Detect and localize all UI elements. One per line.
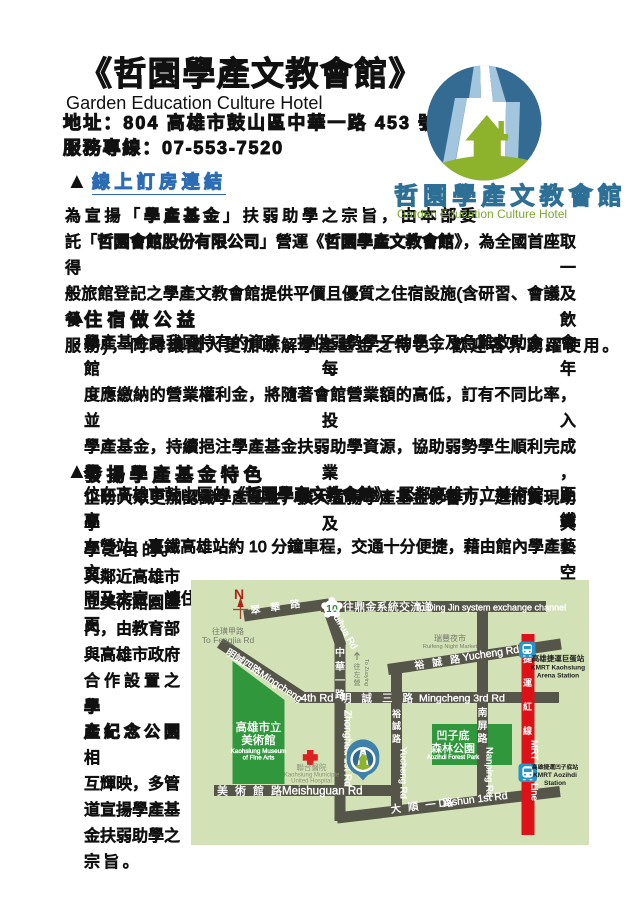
svg-text:美術館路: 美術館路	[217, 784, 289, 798]
svg-text:Ruifeng Night Market: Ruifeng Night Market	[423, 644, 478, 650]
svg-text:左: 左	[354, 670, 361, 679]
svg-text:KMRT Aozihdi: KMRT Aozihdi	[533, 772, 577, 779]
svg-text:Meishuguan Rd: Meishuguan Rd	[282, 786, 363, 798]
svg-text:路: 路	[392, 733, 401, 744]
svg-text:華: 華	[335, 661, 345, 673]
svg-text:Aozihdi Forest Park: Aozihdi Forest Park	[427, 755, 480, 761]
svg-text:To Fengjia Rd: To Fengjia Rd	[202, 635, 255, 645]
svg-text:明誠三路: 明誠三路	[341, 692, 423, 705]
svg-text:Station: Station	[544, 780, 566, 787]
svg-text:高雄捷運巨蛋站: 高雄捷運巨蛋站	[532, 653, 585, 663]
svg-text:Yucheng Rd: Yucheng Rd	[398, 747, 409, 799]
svg-text:營: 營	[354, 678, 361, 687]
svg-text:裕: 裕	[392, 708, 401, 719]
svg-text:屏: 屏	[478, 720, 488, 732]
svg-text:凹子底: 凹子底	[437, 728, 470, 742]
svg-text:高雄捷運凹子底站: 高雄捷運凹子底站	[532, 763, 579, 771]
svg-text:中: 中	[335, 646, 345, 659]
svg-text:路: 路	[478, 732, 488, 745]
svg-text:線: 線	[523, 725, 532, 736]
svg-text:南: 南	[478, 706, 488, 719]
svg-text:紅: 紅	[523, 702, 532, 712]
svg-text:To Zuoying: To Zuoying	[363, 659, 369, 686]
svg-text:瑞豐夜市: 瑞豐夜市	[434, 633, 466, 643]
svg-text:往: 往	[354, 662, 361, 671]
svg-text:of Fine Arts: of Fine Arts	[243, 755, 275, 762]
svg-text:United Hospital: United Hospital	[291, 779, 332, 785]
svg-text:N: N	[234, 586, 244, 602]
svg-text:Mingcheng 3rd Rd: Mingcheng 3rd Rd	[419, 693, 505, 705]
svg-text:To Ding Jin system exchange ch: To Ding Jin system exchange channel	[415, 603, 566, 613]
svg-text:運: 運	[523, 678, 532, 688]
svg-text:高雄市立: 高雄市立	[236, 720, 282, 734]
svg-text:Nanping Rd: Nanping Rd	[484, 747, 495, 797]
svg-text:4th Rd: 4th Rd	[301, 693, 333, 705]
svg-text:Arena Station: Arena Station	[537, 673, 579, 680]
svg-text:美術館: 美術館	[241, 733, 276, 747]
svg-text:KMRT Kaohsiung: KMRT Kaohsiung	[531, 665, 585, 672]
svg-text:聯合醫院: 聯合醫院	[297, 762, 327, 772]
svg-text:森林公園: 森林公園	[431, 741, 475, 755]
svg-text:誠: 誠	[392, 720, 401, 731]
svg-text:一: 一	[335, 676, 345, 687]
